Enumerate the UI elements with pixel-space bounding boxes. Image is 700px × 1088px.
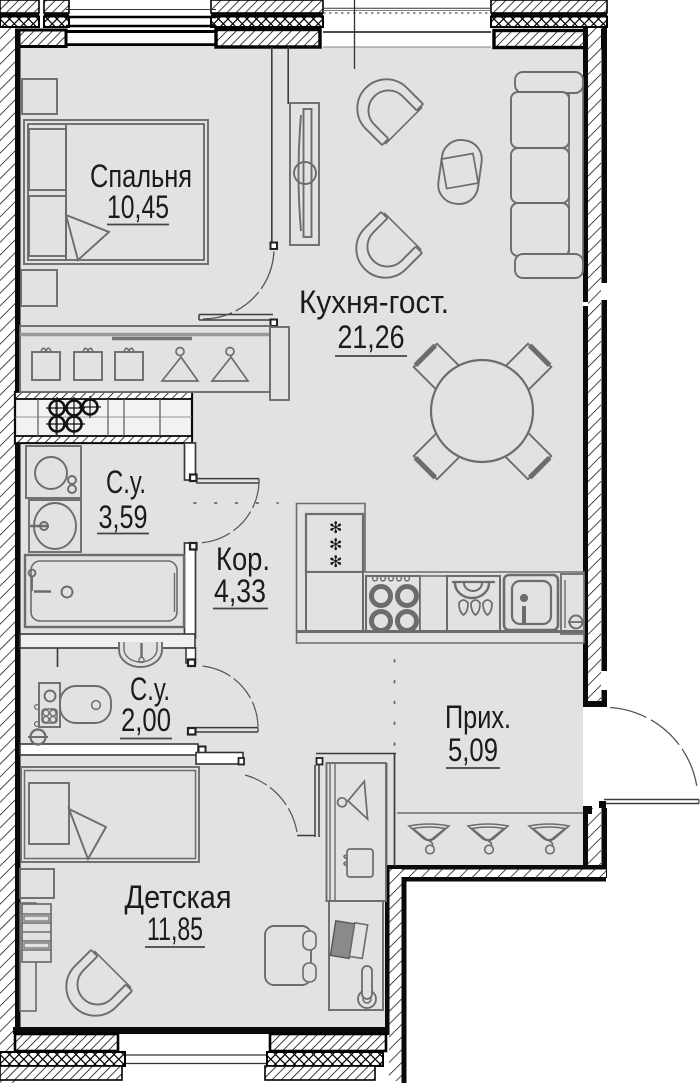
svg-text:11,85: 11,85 xyxy=(147,911,203,947)
svg-text:4,33: 4,33 xyxy=(214,573,266,609)
svg-text:5,09: 5,09 xyxy=(448,732,498,768)
svg-text:2,00: 2,00 xyxy=(121,702,171,738)
svg-text:✻: ✻ xyxy=(329,537,342,554)
svg-text:✻: ✻ xyxy=(329,520,342,537)
svg-text:✻: ✻ xyxy=(329,554,342,571)
svg-text:10,45: 10,45 xyxy=(107,189,169,225)
svg-text:Детская: Детская xyxy=(125,879,232,915)
svg-text:3,59: 3,59 xyxy=(99,499,148,535)
svg-text:Кор.: Кор. xyxy=(216,541,270,577)
svg-text:21,26: 21,26 xyxy=(338,319,405,355)
svg-text:Кухня-гост.: Кухня-гост. xyxy=(299,284,449,320)
svg-text:С.у.: С.у. xyxy=(106,464,146,500)
svg-text:Прих.: Прих. xyxy=(445,699,511,735)
